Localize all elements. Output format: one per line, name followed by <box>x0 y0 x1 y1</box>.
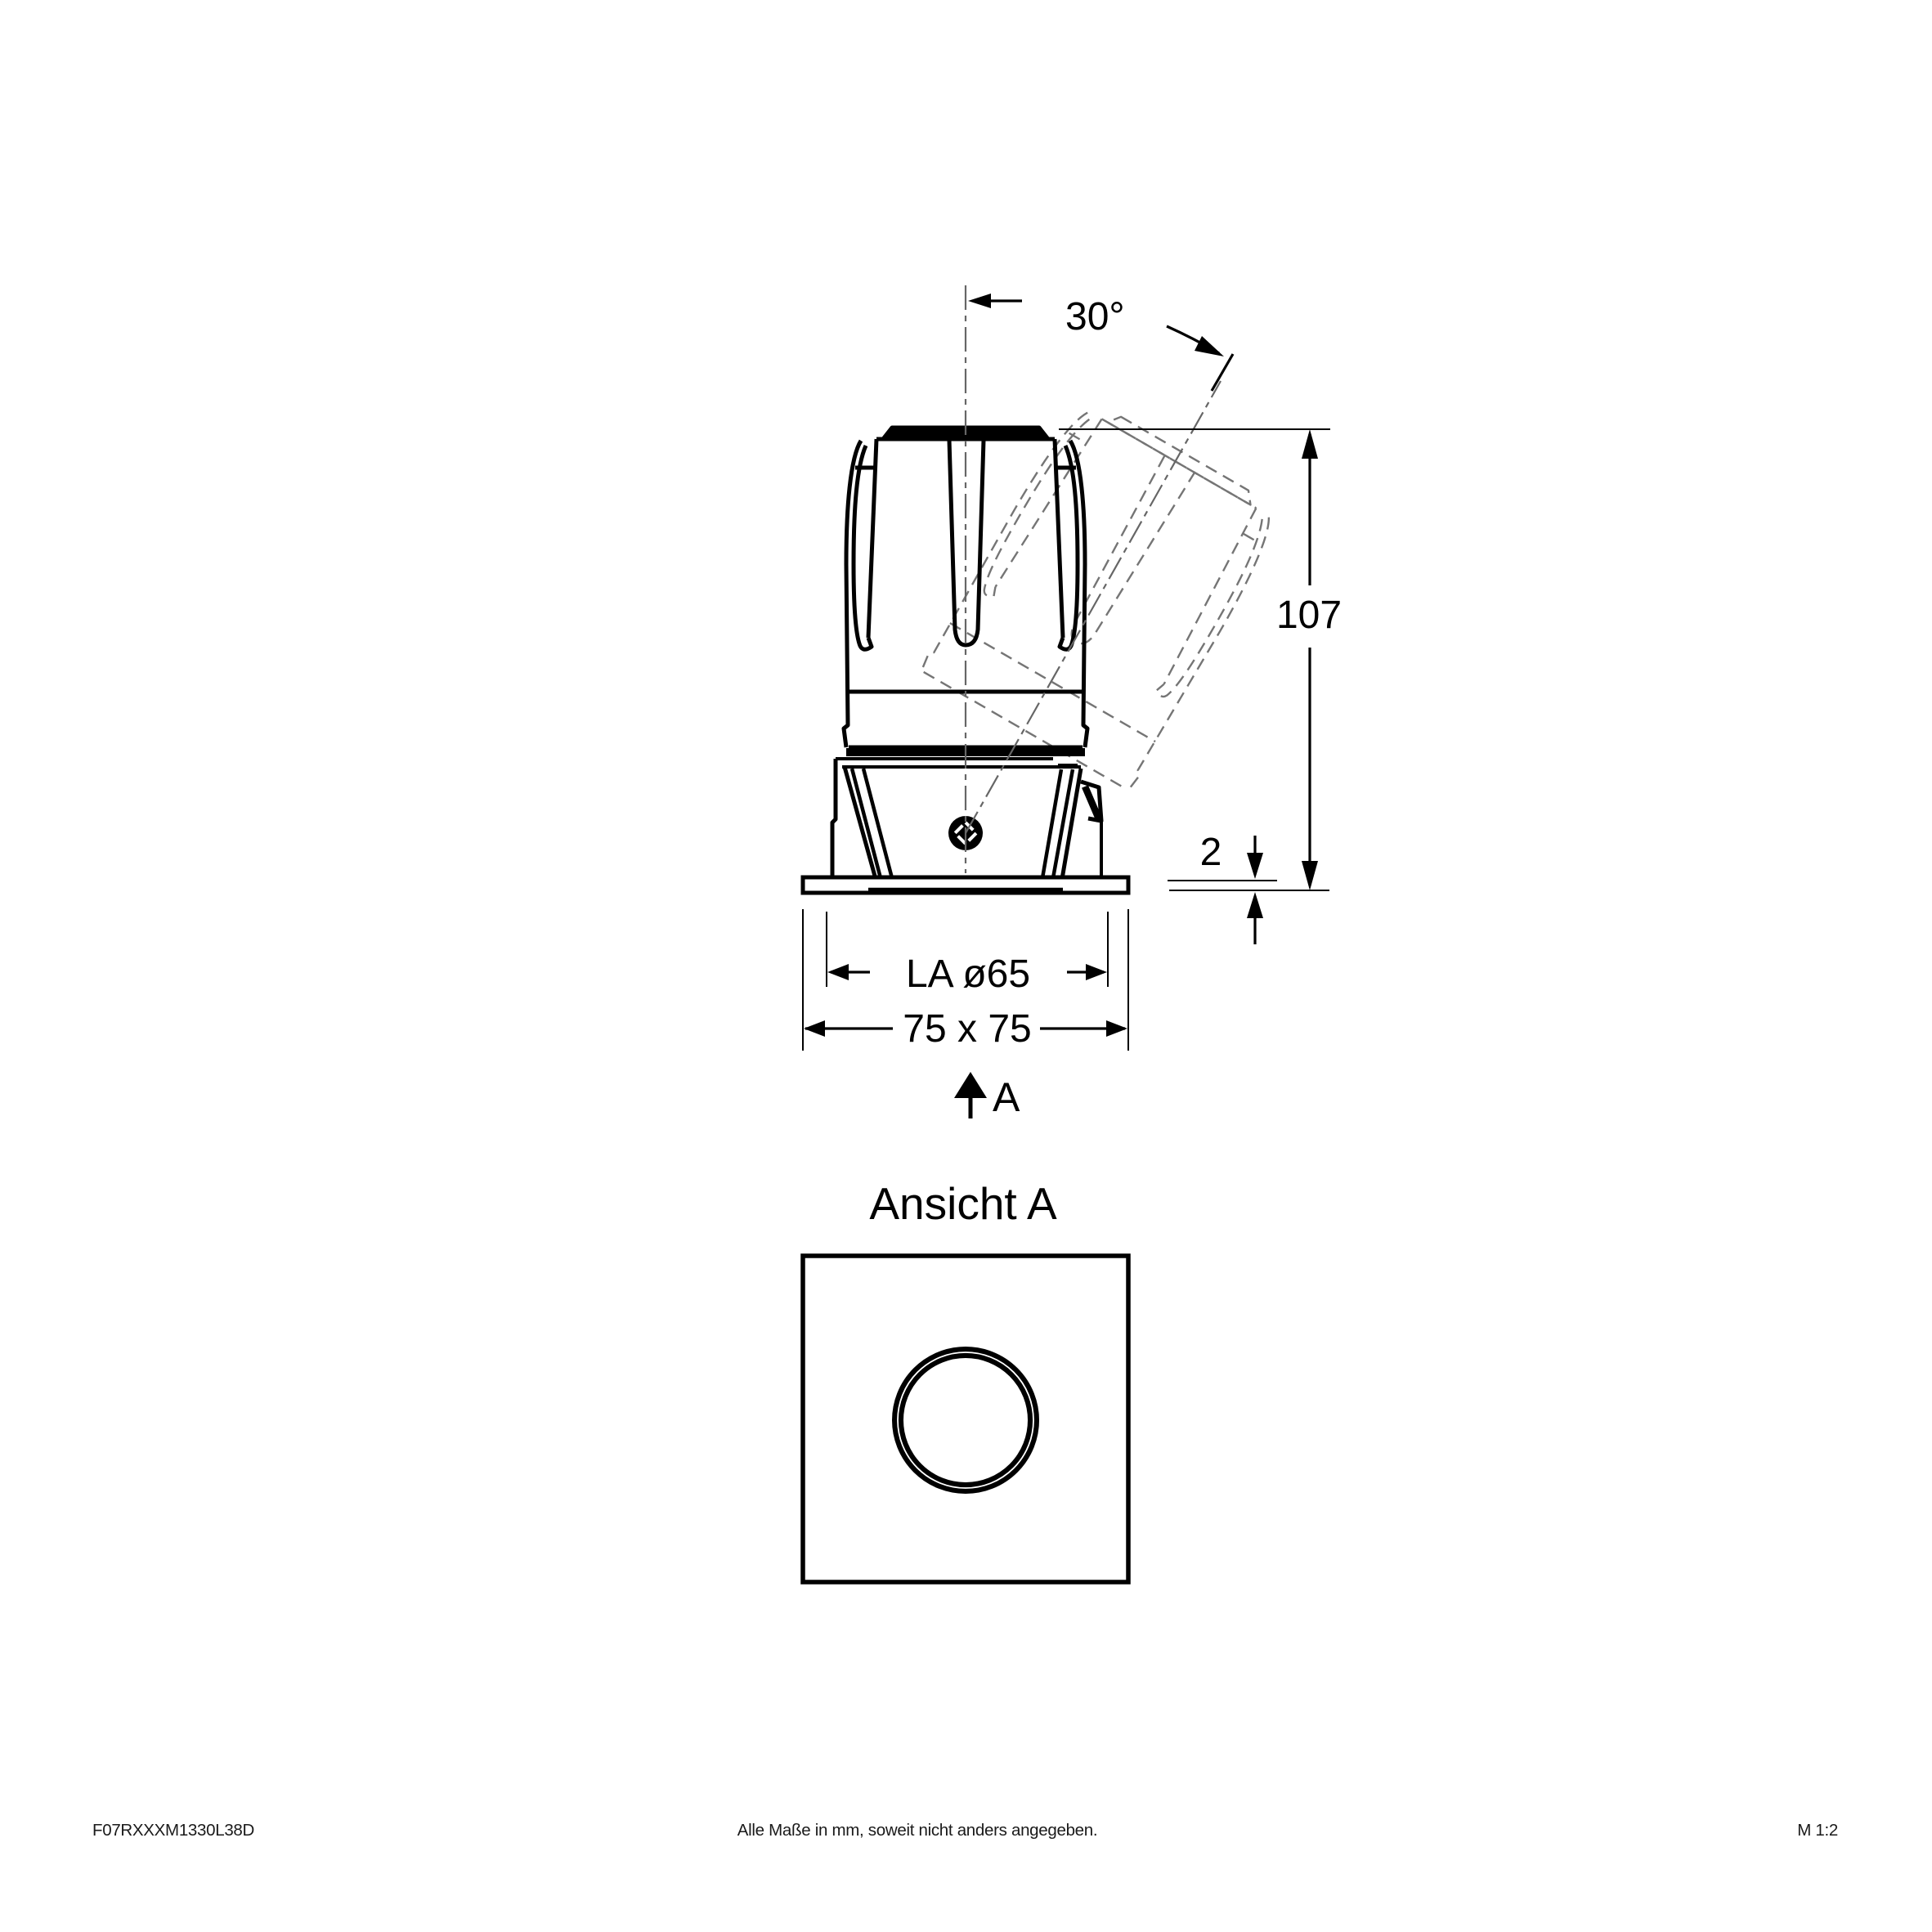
dim-flange-thickness: 2 <box>1168 831 1277 944</box>
dim-arrow-right <box>1106 1020 1127 1037</box>
dim-arrow-up-small <box>1247 892 1263 918</box>
bottom-view: Ansicht A <box>803 1178 1128 1582</box>
dim-arrow-arc <box>1195 336 1224 356</box>
ceiling-flange <box>803 877 1128 893</box>
cutout-label: LA ø65 <box>906 953 1030 996</box>
footer: F07RXXXM1330L38D Alle Maße in mm, soweit… <box>92 1821 1838 1840</box>
dimension-note: Alle Maße in mm, soweit nicht anders ang… <box>737 1821 1098 1840</box>
flange-thickness-label: 2 <box>1200 831 1222 874</box>
bottom-view-title: Ansicht A <box>869 1178 1057 1229</box>
height-label: 107 <box>1276 594 1342 637</box>
dim-arrow-up <box>1302 429 1318 459</box>
side-bracket <box>1081 782 1101 876</box>
view-arrow-icon <box>954 1072 987 1098</box>
dimensional-drawing: 30° 107 2 LA ø65 75 x 75 A <box>0 0 1932 1932</box>
dim-arrow-left <box>827 964 849 980</box>
dim-tilt-angle: 30° <box>968 294 1233 391</box>
view-direction-marker: A <box>954 1072 1020 1120</box>
dim-arrow-right <box>1086 964 1107 980</box>
view-arrow-label: A <box>993 1074 1020 1120</box>
article-number: F07RXXXM1330L38D <box>92 1821 254 1840</box>
frame-outline <box>803 1256 1128 1582</box>
dim-arrow-down-small <box>1247 853 1263 879</box>
spring-clip-right <box>1042 769 1073 878</box>
tilt-angle-label: 30° <box>1065 295 1125 338</box>
drawing-page: 30° 107 2 LA ø65 75 x 75 A <box>0 0 1932 1932</box>
dim-arrow-down <box>1302 861 1318 890</box>
dim-arrow-left <box>804 1020 825 1037</box>
frame-label: 75 x 75 <box>903 1007 1031 1051</box>
dim-arrow-left <box>968 294 991 308</box>
dim-cutout: LA ø65 <box>827 912 1108 996</box>
scale-label: M 1:2 <box>1797 1821 1838 1840</box>
tilted-body-ghost <box>919 392 1290 791</box>
